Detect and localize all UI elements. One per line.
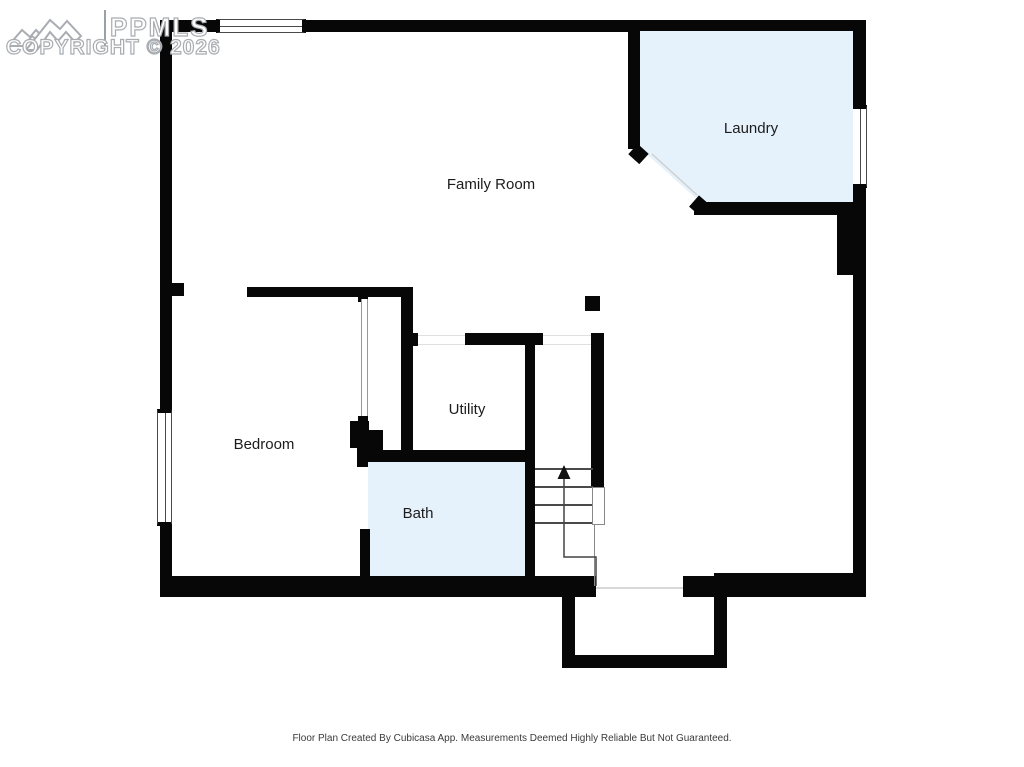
closet-door-panel	[361, 299, 368, 418]
support-post	[585, 296, 600, 311]
exterior-wall-left-upper	[160, 20, 172, 412]
laundry-wall-bottom	[694, 202, 866, 215]
bedroom-door-stub	[172, 283, 184, 296]
bath-wall-left	[360, 529, 370, 577]
utility-door-line	[418, 335, 465, 336]
watermark-copyright: COPYRIGHT © 2026	[6, 36, 221, 60]
exterior-wall-left-lower	[160, 524, 172, 577]
exterior-wall-right-block	[837, 208, 866, 275]
laundry-door-jamb-upper	[633, 149, 644, 159]
bedroom-wall-right	[401, 287, 413, 462]
room-label-bedroom: Bedroom	[210, 436, 318, 453]
watermark: PPMLS COPYRIGHT © 2026	[6, 4, 246, 68]
exterior-wall-bottom-right	[714, 573, 866, 597]
stair-direction-line	[564, 478, 596, 586]
floor-plan: Family Room Laundry Bedroom Utility Bath…	[0, 0, 1024, 767]
bath-wall-top	[368, 450, 535, 462]
exterior-wall-bottom-mid	[683, 576, 716, 597]
utility-wall-top	[465, 333, 543, 345]
utility-door-line	[418, 344, 465, 345]
stairs-direction-arrow-icon	[530, 455, 610, 590]
up-arrow-head	[558, 465, 571, 479]
laundry-wall-left	[628, 31, 640, 149]
stairs-opening-line	[543, 344, 591, 345]
laundry-floor-fill	[640, 31, 853, 202]
footer-caption: Floor Plan Created By Cubicasa App. Meas…	[0, 733, 1024, 744]
room-label-laundry: Laundry	[700, 120, 802, 137]
entry-alcove-wall-bottom	[562, 655, 727, 668]
room-label-bath: Bath	[370, 505, 466, 522]
bedroom-wall-top	[247, 287, 413, 297]
stairs-opening-line	[543, 335, 591, 336]
exterior-wall-right-lower	[853, 273, 866, 577]
window-icon-left	[157, 409, 172, 526]
window-pane-line	[165, 413, 166, 522]
room-label-family-room: Family Room	[420, 176, 562, 193]
utility-door-stub	[410, 333, 418, 346]
room-label-utility: Utility	[420, 401, 514, 418]
laundry-room-shape	[628, 20, 868, 216]
